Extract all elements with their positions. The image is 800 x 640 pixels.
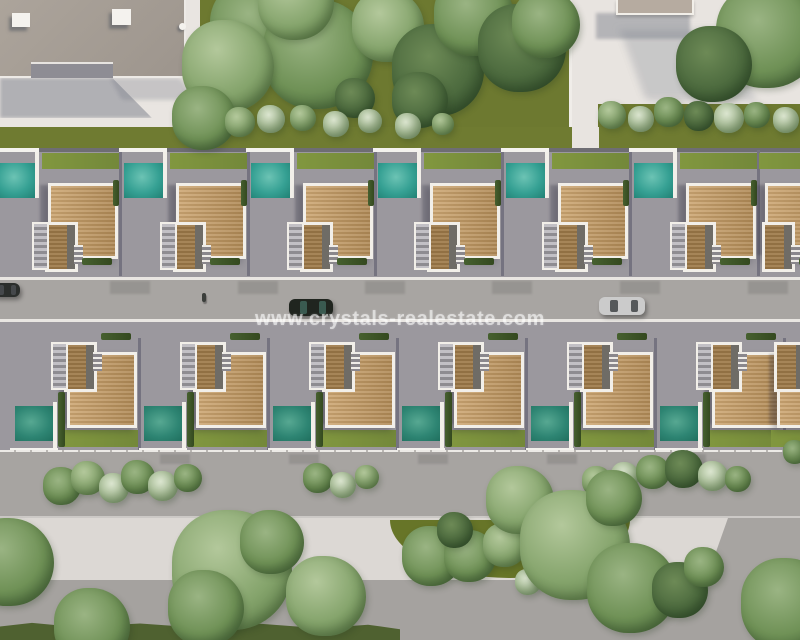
villa-lot bbox=[0, 152, 122, 280]
rear-lawn bbox=[319, 430, 396, 447]
swimming-pool bbox=[15, 406, 55, 441]
hedge bbox=[703, 392, 710, 447]
villa-lot bbox=[271, 322, 399, 452]
pool-back-fence bbox=[629, 148, 677, 152]
wall-shadow bbox=[676, 454, 706, 464]
swimming-pool bbox=[124, 163, 164, 198]
boundary-wall bbox=[654, 338, 657, 452]
pool-back-fence bbox=[0, 148, 39, 152]
villa-lot bbox=[142, 322, 270, 452]
swimming-pool bbox=[273, 406, 313, 441]
carport-pergola bbox=[542, 222, 559, 270]
rear-lawn bbox=[42, 153, 119, 169]
pool-side-wall bbox=[311, 402, 315, 450]
hedge bbox=[488, 333, 518, 340]
carport-pergola bbox=[180, 342, 197, 390]
villa-row-north bbox=[0, 152, 800, 280]
carport-pergola bbox=[696, 342, 713, 390]
wall-shadow bbox=[289, 454, 319, 464]
villa-lot bbox=[249, 152, 377, 280]
hedge bbox=[101, 333, 131, 340]
rear-lawn bbox=[577, 430, 654, 447]
car-parked-edge bbox=[0, 283, 20, 297]
villa-lot bbox=[13, 322, 141, 452]
villa-lot bbox=[711, 152, 800, 280]
villa-lot bbox=[122, 152, 250, 280]
swimming-pool bbox=[660, 406, 700, 441]
hedge bbox=[445, 392, 452, 447]
pool-side-wall bbox=[417, 150, 421, 198]
hedge bbox=[58, 392, 65, 447]
hedge bbox=[464, 258, 494, 265]
pool-side-wall bbox=[440, 402, 444, 450]
pool-side-wall bbox=[673, 150, 677, 198]
pool-back-fence bbox=[119, 148, 167, 152]
carport-pergola bbox=[309, 342, 326, 390]
pool-side-wall bbox=[35, 150, 39, 198]
rear-lawn bbox=[190, 430, 267, 447]
villa-lot bbox=[723, 322, 800, 452]
hedge bbox=[574, 392, 581, 447]
villa-entry-roof bbox=[774, 342, 800, 392]
wall-shadow bbox=[110, 281, 150, 294]
rear-lawn bbox=[552, 153, 629, 169]
pool-back-fence bbox=[501, 148, 549, 152]
villa-row-south bbox=[0, 322, 800, 452]
swimming-pool bbox=[506, 163, 546, 198]
entry-steps bbox=[609, 352, 618, 371]
hedge bbox=[82, 258, 112, 265]
swimming-pool bbox=[531, 406, 571, 441]
carport-pergola bbox=[160, 222, 177, 270]
rear-lawn bbox=[759, 153, 800, 169]
swimming-pool bbox=[0, 163, 36, 198]
rooftop-unit bbox=[112, 9, 131, 25]
pool-side-wall bbox=[290, 150, 294, 198]
hedge bbox=[210, 258, 240, 265]
pool-side-wall bbox=[53, 402, 57, 450]
rooftop-unit bbox=[12, 13, 30, 27]
swimming-pool bbox=[634, 163, 674, 198]
wall-shadow bbox=[238, 281, 278, 294]
curb-line bbox=[0, 277, 800, 280]
hedge bbox=[187, 392, 194, 447]
back-lawn-area bbox=[200, 0, 572, 127]
pool-side-wall bbox=[569, 402, 573, 450]
building-shadow bbox=[110, 78, 192, 100]
rear-lawn bbox=[297, 153, 374, 169]
boundary-wall bbox=[267, 338, 270, 452]
plaza-fence bbox=[569, 0, 572, 127]
swimming-pool bbox=[144, 406, 184, 441]
rear-lawn bbox=[771, 430, 800, 447]
rear-lawn bbox=[424, 153, 501, 169]
aerial-development-render: www.crystals-realestate.com bbox=[0, 0, 800, 640]
carport-pergola bbox=[670, 222, 687, 270]
sidewalk-strip bbox=[0, 452, 800, 518]
entry-steps bbox=[222, 352, 231, 371]
entry-steps bbox=[480, 352, 489, 371]
rear-lawn bbox=[61, 430, 138, 447]
pool-back-fence bbox=[373, 148, 421, 152]
wall-shadow bbox=[748, 281, 788, 294]
swimming-pool bbox=[251, 163, 291, 198]
carport-pergola bbox=[287, 222, 304, 270]
villa-lot bbox=[376, 152, 504, 280]
pedestrian-figure bbox=[202, 293, 206, 302]
carport-pergola bbox=[567, 342, 584, 390]
plaza-grass-border bbox=[598, 104, 800, 128]
villa-lot bbox=[529, 322, 657, 452]
entry-steps bbox=[93, 352, 102, 371]
swimming-pool bbox=[378, 163, 418, 198]
watermark: www.crystals-realestate.com bbox=[0, 308, 800, 331]
boundary-wall bbox=[396, 338, 399, 452]
swimming-pool bbox=[402, 406, 442, 441]
hedge bbox=[316, 392, 323, 447]
wall-shadow bbox=[418, 454, 448, 464]
wall-shadow bbox=[547, 454, 577, 464]
rear-lawn bbox=[448, 430, 525, 447]
pool-side-wall bbox=[163, 150, 167, 198]
pool-back-fence bbox=[246, 148, 294, 152]
boundary-wall bbox=[138, 338, 141, 452]
rooftop-vent bbox=[179, 23, 186, 30]
entry-steps bbox=[351, 352, 360, 371]
carport-pergola bbox=[51, 342, 68, 390]
hedge bbox=[359, 333, 389, 340]
pool-side-wall bbox=[698, 402, 702, 450]
villa-lot bbox=[504, 152, 632, 280]
wall-shadow bbox=[620, 281, 660, 294]
hedge bbox=[230, 333, 260, 340]
pool-side-wall bbox=[545, 150, 549, 198]
carport-pergola bbox=[414, 222, 431, 270]
hedge bbox=[617, 333, 647, 340]
roof-lower-section bbox=[31, 62, 113, 78]
hedge bbox=[592, 258, 622, 265]
wall-shadow bbox=[160, 454, 190, 464]
wall-shadow bbox=[492, 281, 532, 294]
pool-side-wall bbox=[182, 402, 186, 450]
rear-lawn bbox=[170, 153, 247, 169]
carport-pergola bbox=[438, 342, 455, 390]
pavilion-roof bbox=[616, 0, 694, 15]
boundary-wall bbox=[525, 338, 528, 452]
hedge bbox=[337, 258, 367, 265]
wall-shadow bbox=[365, 281, 405, 294]
villa-lot bbox=[400, 322, 528, 452]
carport-pergola bbox=[32, 222, 49, 270]
